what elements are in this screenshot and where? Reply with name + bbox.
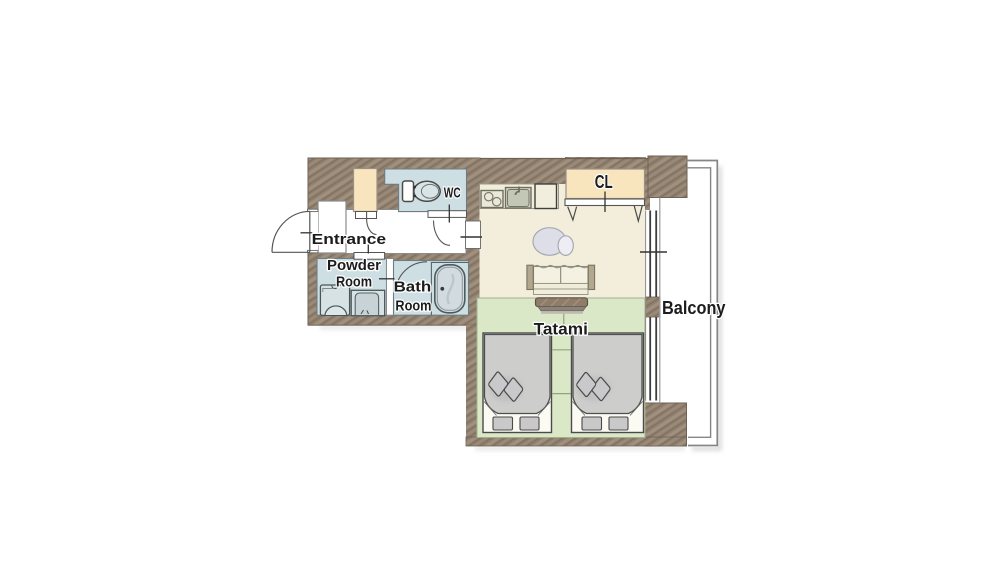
- svg-text:CL: CL: [595, 171, 613, 192]
- svg-text:Balcony: Balcony: [662, 298, 726, 318]
- svg-text:Powder: Powder: [327, 257, 381, 274]
- svg-text:Bath: Bath: [394, 279, 432, 296]
- svg-text:Room: Room: [395, 298, 431, 315]
- svg-text:WC: WC: [444, 184, 461, 201]
- svg-text:Room: Room: [336, 274, 372, 291]
- svg-text:Tatami: Tatami: [534, 320, 588, 339]
- svg-text:Entrance: Entrance: [312, 232, 387, 248]
